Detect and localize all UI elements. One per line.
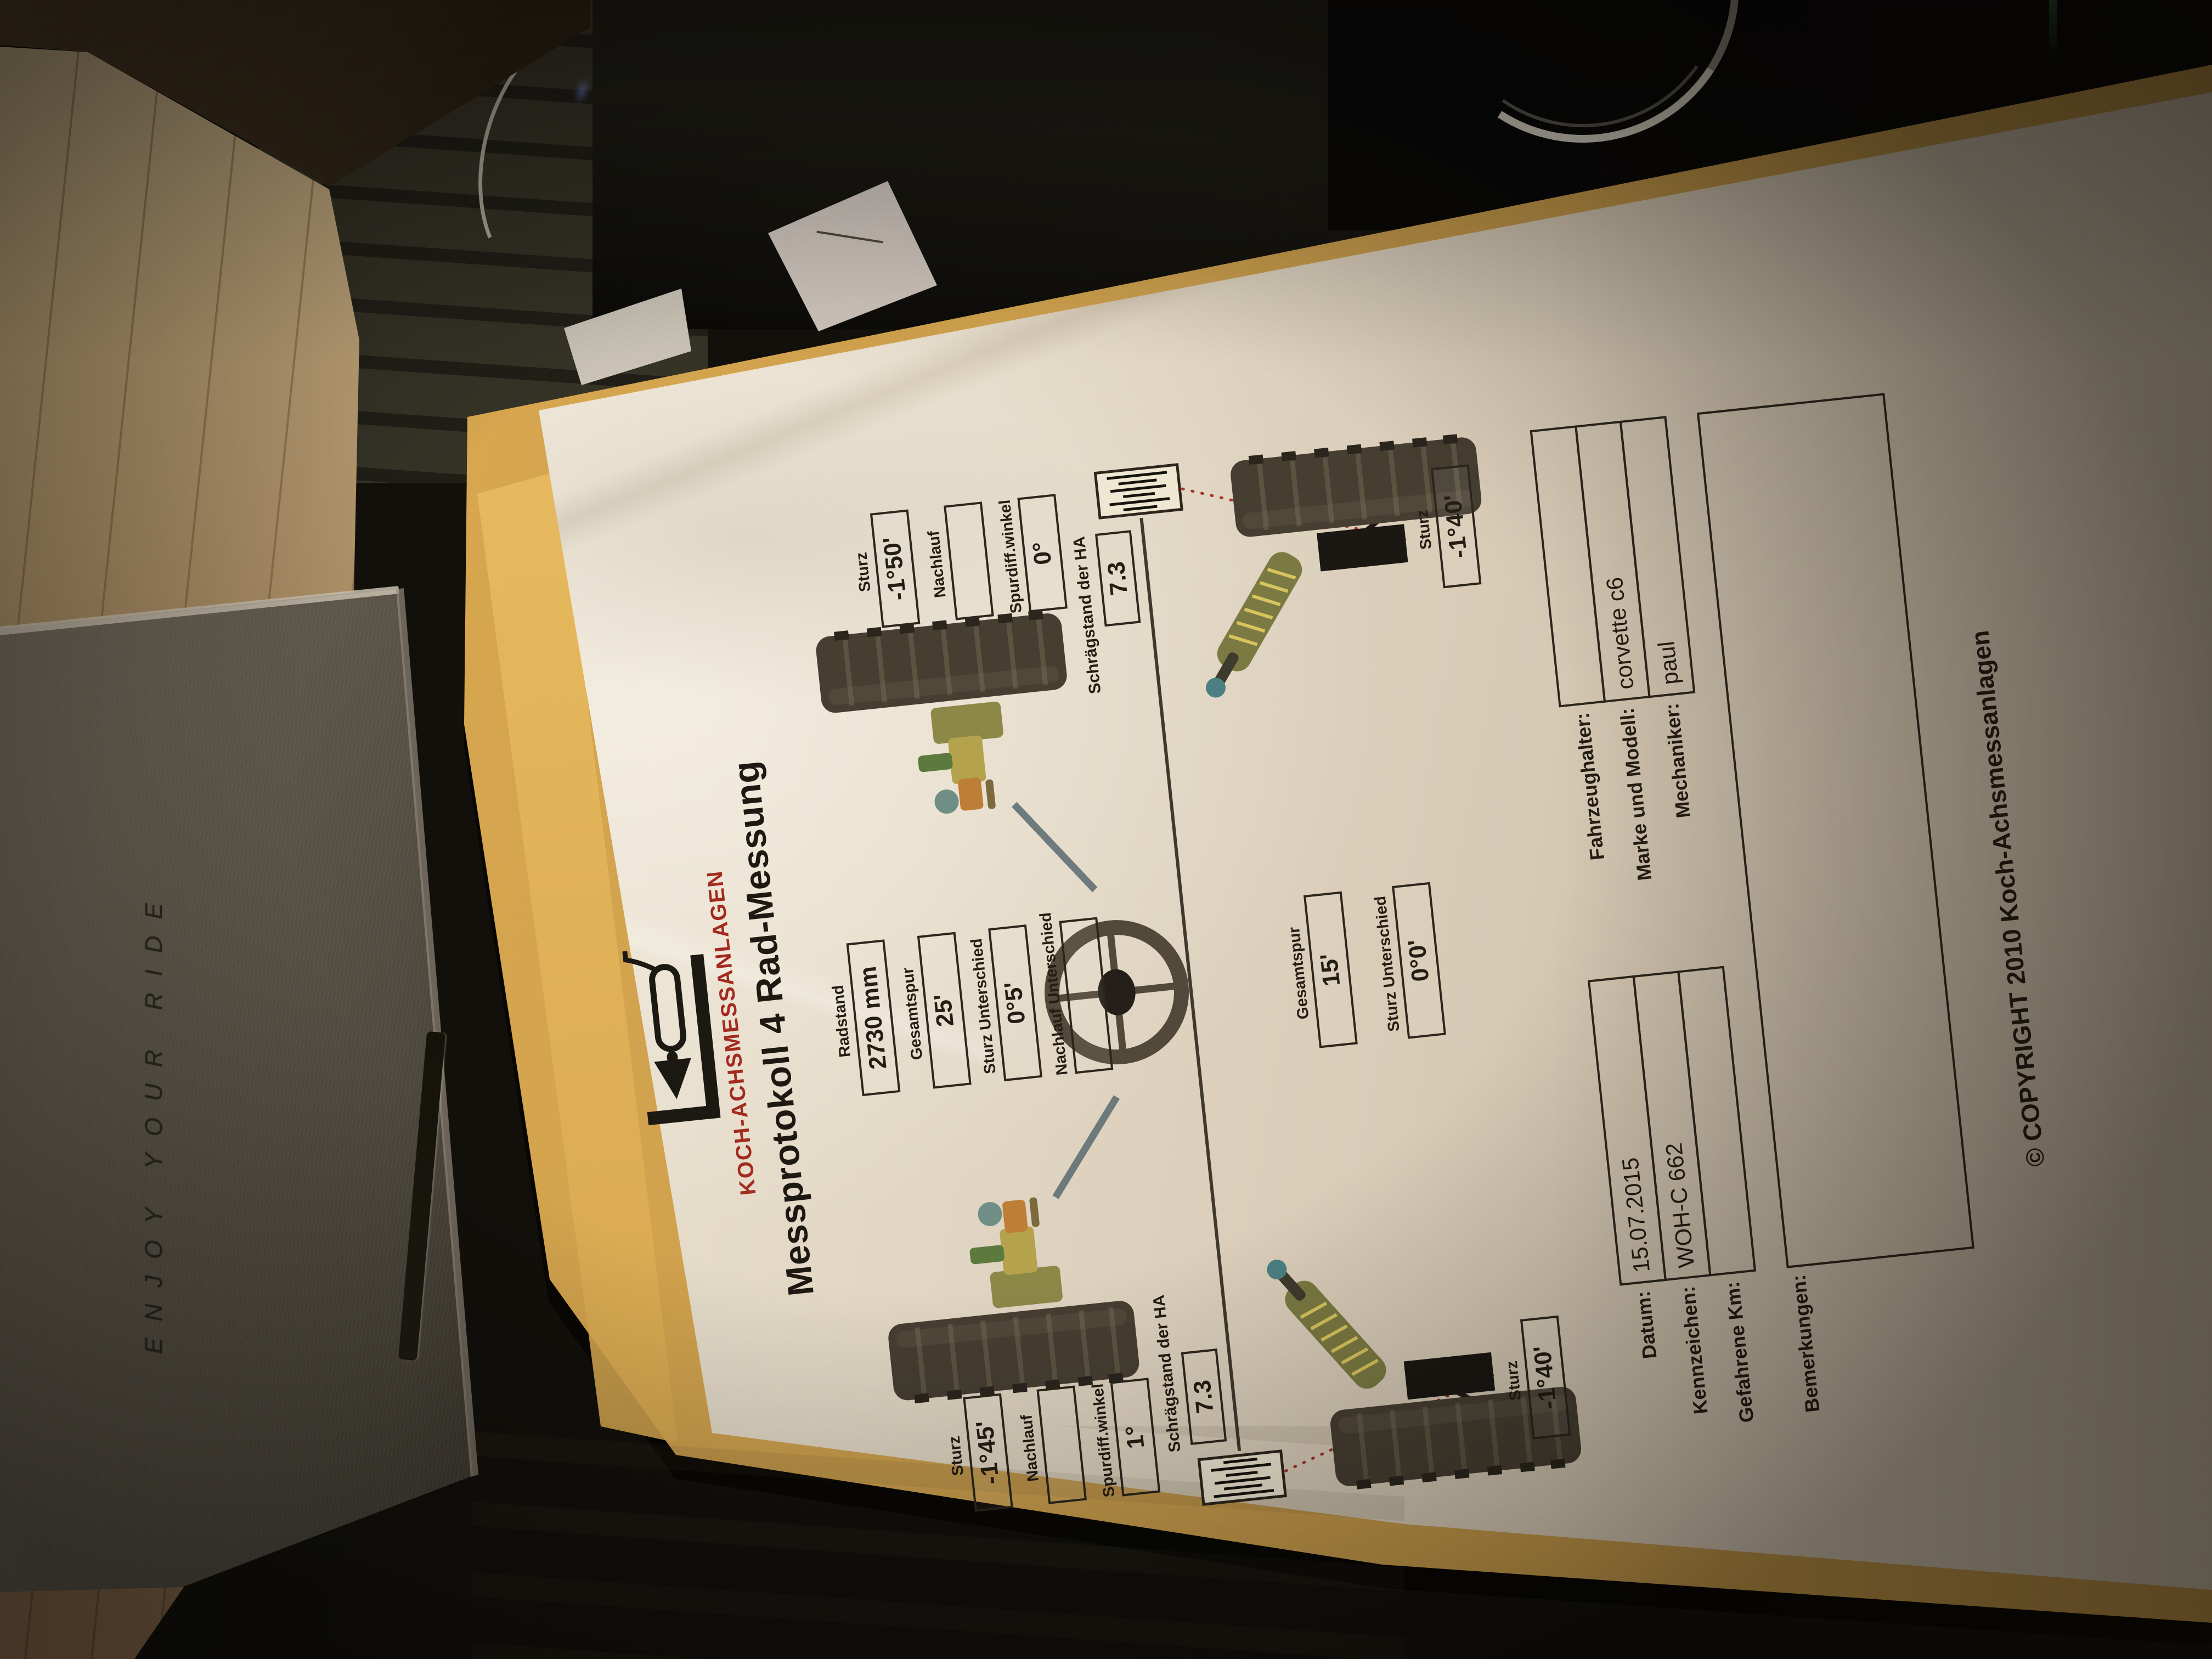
axle-diagram [541,339,2200,1593]
field-sturz-rear-right: Sturz -1°40' [1409,464,1481,590]
field-nachlauf-front-right: Nachlauf [922,501,994,622]
field-sturz-front-left: Sturz -1°45' [941,1393,1013,1514]
field-nachlauf-front-left: Nachlauf [1015,1386,1087,1506]
photo-scene: ENJOY YOUR RIDE KOCH-ACHSMESSANLAGEN Mes… [0,0,2212,1659]
field-spurdiff-front-left: Spurdiff.winkel 1° [1089,1378,1160,1498]
box-slogan: ENJOY YOUR RIDE [140,572,176,1659]
alignment-report: KOCH-ACHSMESSANLAGEN Messprotokoll 4 Rad… [541,339,2200,1593]
field-spurdiff-front-right: Spurdiff.winkel 0° [996,494,1068,614]
green-led-reflection [2049,0,2057,60]
field-sturz-front-right: Sturz -1°50' [849,510,920,630]
field-sturz-rear-left: Sturz -1°40' [1499,1316,1571,1442]
